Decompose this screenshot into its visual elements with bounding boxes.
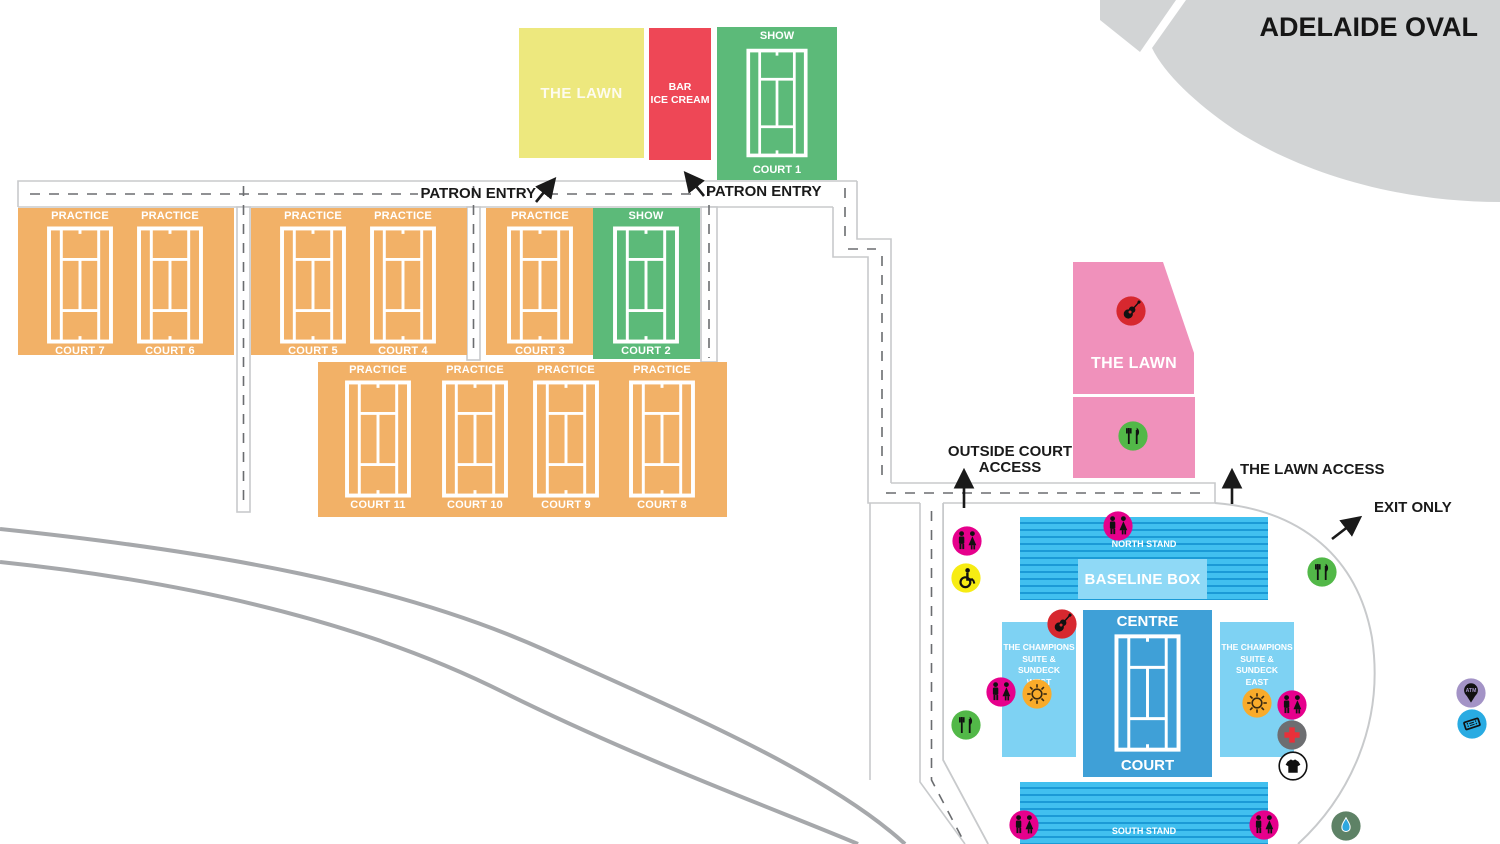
bar-ice-cream-area: BAR ICE CREAM — [649, 28, 711, 160]
lawn-access-label: THE LAWN ACCESS — [1240, 461, 1384, 478]
live-music-icon — [1047, 609, 1077, 639]
outside-court-access-line1: OUTSIDE COURT — [944, 444, 1076, 460]
centre-court-label-bottom: COURT — [1083, 757, 1212, 774]
tennis-court-lines — [46, 226, 114, 344]
tennis-court-lines — [344, 380, 412, 498]
tennis-court-lines — [628, 380, 696, 498]
centre-court-label-top: CENTRE — [1083, 613, 1212, 630]
suite-west-line1: THE CHAMPIONS — [1002, 642, 1076, 654]
baseline-box: BASELINE BOX — [1078, 559, 1207, 599]
toilets-icon — [1249, 810, 1279, 840]
sundeck-icon — [1242, 688, 1272, 718]
baseline-box-label: BASELINE BOX — [1084, 571, 1200, 588]
toilets-icon — [1277, 690, 1307, 720]
food-icon — [1307, 557, 1337, 587]
court-7: PRACTICE COURT 7 — [32, 208, 128, 360]
patron-entry-left-arrow — [536, 181, 553, 202]
water-refill-icon — [1331, 811, 1361, 841]
tennis-court-lines — [506, 226, 574, 344]
bar-label: BAR — [669, 81, 692, 94]
patron-entry-right-arrow — [687, 175, 704, 196]
toilets-icon — [986, 677, 1016, 707]
tennis-court-lines — [369, 226, 437, 344]
court-8: PRACTICE COURT 8 — [614, 362, 710, 514]
first-aid-icon — [1277, 720, 1307, 750]
road-lines — [0, 529, 905, 844]
court-name-label: COURT 7 — [32, 345, 128, 357]
court-type-label: PRACTICE — [427, 364, 523, 376]
atm-icon: ATM — [1456, 678, 1486, 708]
tickets-icon — [1457, 709, 1487, 739]
south-stand-label: SOUTH STAND — [1020, 826, 1268, 836]
south-stand: SOUTH STAND — [1020, 782, 1268, 844]
the-lawn-label: THE LAWN — [1073, 355, 1195, 373]
merchandise-icon — [1278, 751, 1308, 781]
court-10: PRACTICE COURT 10 — [427, 362, 523, 514]
court-5: PRACTICE COURT 5 — [265, 208, 361, 360]
exit-only-label: EXIT ONLY — [1374, 499, 1452, 516]
toilets-icon — [952, 526, 982, 556]
suite-west-line2: SUITE & SUNDECK — [1002, 654, 1076, 677]
show-court-1: SHOW COURT 1 — [717, 27, 837, 180]
court-3: PRACTICE COURT 3 — [492, 208, 588, 360]
the-lawn-top-label: THE LAWN — [540, 85, 622, 102]
court-type-label: PRACTICE — [518, 364, 614, 376]
suite-east-line3: EAST — [1220, 677, 1294, 689]
tennis-court-lines — [746, 44, 808, 162]
court-9: PRACTICE COURT 9 — [518, 362, 614, 514]
suite-east-line1: THE CHAMPIONS — [1220, 642, 1294, 654]
food-icon — [951, 710, 981, 740]
court-11: PRACTICE COURT 11 — [330, 362, 426, 514]
tennis-court-lines — [1114, 631, 1181, 755]
patron-entry-left-label: PATRON ENTRY — [400, 185, 536, 202]
tennis-court-lines — [532, 380, 600, 498]
tennis-court-lines — [279, 226, 347, 344]
court-name-label: COURT 3 — [492, 345, 588, 357]
centre-court: CENTRE COURT — [1083, 610, 1212, 777]
exit-only-arrow — [1332, 519, 1358, 539]
outside-court-access-line2: ACCESS — [944, 460, 1076, 476]
ice-cream-label: ICE CREAM — [651, 94, 710, 107]
patron-entry-right-label: PATRON ENTRY — [706, 183, 822, 200]
court-type-label: SHOW — [717, 30, 837, 42]
court-name-label: COURT 1 — [717, 164, 837, 176]
court-name-label: COURT 9 — [518, 499, 614, 511]
venue-map: ADELAIDE OVAL THE LAWN BAR ICE CREAM SHO… — [0, 0, 1500, 844]
food-icon — [1118, 421, 1148, 451]
court-name-label: COURT 8 — [614, 499, 710, 511]
court-type-label: PRACTICE — [492, 210, 588, 222]
toilets-icon — [1009, 810, 1039, 840]
court-name-label: COURT 4 — [355, 345, 451, 357]
suite-east-line2: SUITE & SUNDECK — [1220, 654, 1294, 677]
court-6: PRACTICE COURT 6 — [122, 208, 218, 360]
the-lawn-top-area: THE LAWN — [519, 28, 644, 158]
court-type-label: PRACTICE — [355, 210, 451, 222]
tennis-court-lines — [441, 380, 509, 498]
court-4: PRACTICE COURT 4 — [355, 208, 451, 360]
tennis-court-lines — [136, 226, 204, 344]
court-name-label: COURT 2 — [598, 345, 694, 357]
atm-icon-label: ATM — [1466, 688, 1477, 694]
the-lawn-upper-area — [1073, 262, 1194, 394]
court-type-label: PRACTICE — [330, 364, 426, 376]
court-name-label: COURT 10 — [427, 499, 523, 511]
court-2: SHOW COURT 2 — [598, 208, 694, 360]
court-type-label: PRACTICE — [122, 210, 218, 222]
north-stand-label: NORTH STAND — [1020, 539, 1268, 549]
court-type-label: PRACTICE — [32, 210, 128, 222]
court-name-label: COURT 11 — [330, 499, 426, 511]
tennis-court-lines — [612, 226, 680, 344]
court-type-label: PRACTICE — [614, 364, 710, 376]
toilets-icon — [1103, 511, 1133, 541]
court-type-label: SHOW — [598, 210, 694, 222]
live-music-icon — [1116, 296, 1146, 326]
sundeck-icon — [1022, 679, 1052, 709]
north-stand: NORTH STAND BASELINE BOX — [1020, 517, 1268, 600]
court-name-label: COURT 6 — [122, 345, 218, 357]
page-title: ADELAIDE OVAL — [1178, 12, 1478, 43]
accessible-icon — [951, 563, 981, 593]
court-name-label: COURT 5 — [265, 345, 361, 357]
court-type-label: PRACTICE — [265, 210, 361, 222]
outside-court-access-label: OUTSIDE COURT ACCESS — [944, 444, 1076, 476]
